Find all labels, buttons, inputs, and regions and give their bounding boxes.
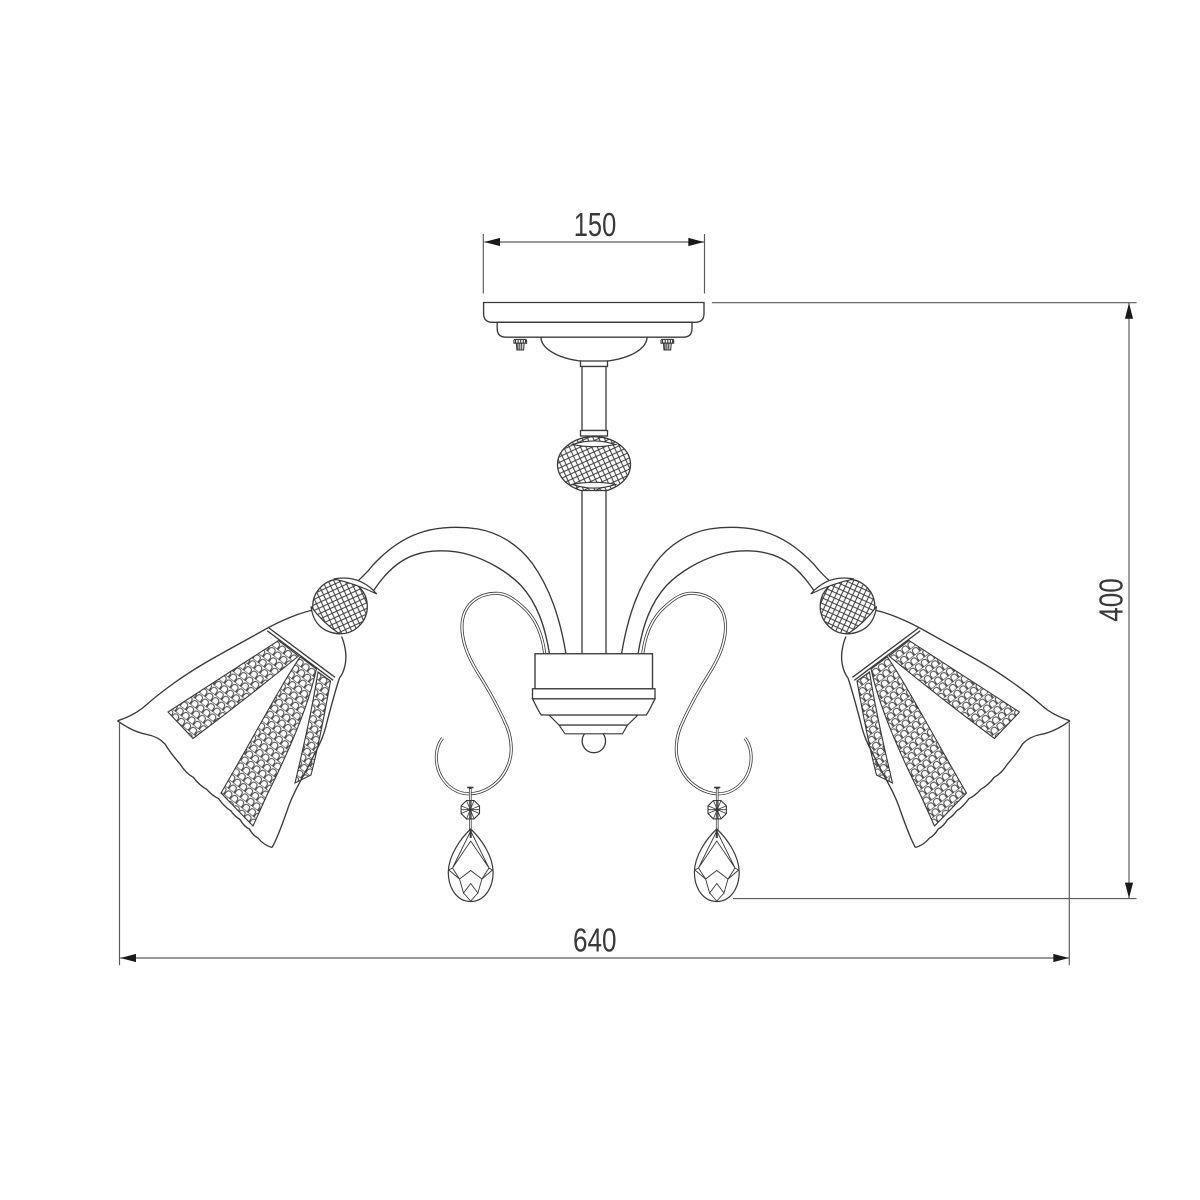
svg-text:400: 400 — [1093, 578, 1130, 622]
svg-text:150: 150 — [574, 206, 617, 243]
svg-text:640: 640 — [573, 922, 617, 959]
